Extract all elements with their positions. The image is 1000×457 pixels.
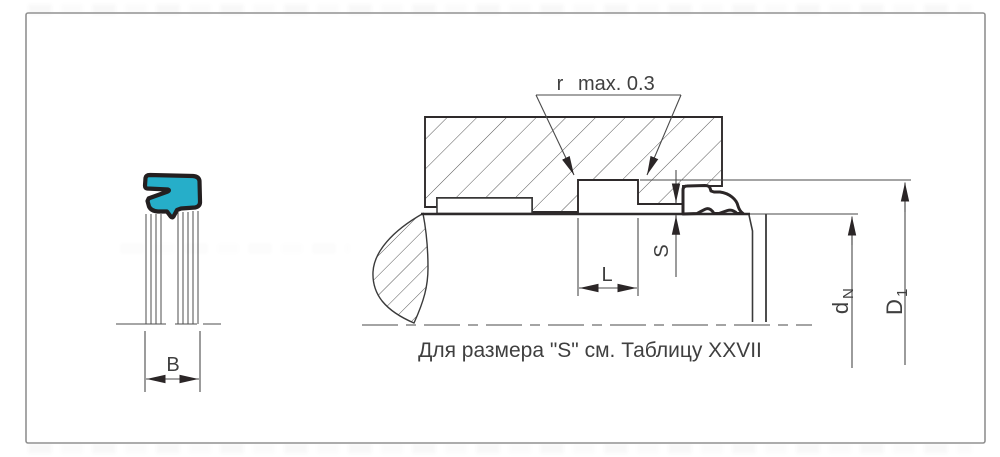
seal-surface-lines: [146, 211, 198, 324]
radius-label-value: max. 0.3: [578, 73, 655, 95]
dimension-D1-label: D: [882, 299, 907, 315]
dimension-S-label: S: [651, 244, 673, 257]
dimension-L-label: L: [601, 264, 612, 286]
guide-ring: [437, 198, 532, 214]
catalog-figure: B: [0, 0, 1000, 457]
note-text: Для размера "S" см. Таблицу XXVII: [418, 339, 762, 362]
installed-seal-profile: [683, 186, 743, 215]
dimension-dN-subscript: N: [840, 288, 857, 299]
dimension-dN: d N: [828, 217, 857, 369]
rod-end-chamfer-edge: [749, 215, 753, 322]
dimension-D1: D 1: [882, 183, 911, 366]
radius-label-prefix: r: [557, 73, 564, 95]
seal-profile: [145, 175, 200, 217]
rod-break: [373, 214, 428, 324]
dimension-D1-subscript: 1: [894, 289, 911, 297]
right-view-installation: r max. 0.3 L S: [362, 73, 911, 368]
dimension-B-label: B: [166, 354, 179, 376]
left-view-seal-cross-section: B: [116, 175, 221, 392]
dimension-L: L: [578, 218, 638, 296]
dimension-dN-label: d: [828, 302, 853, 314]
technical-drawing: B: [0, 0, 1000, 457]
dimension-B: B: [145, 331, 200, 392]
